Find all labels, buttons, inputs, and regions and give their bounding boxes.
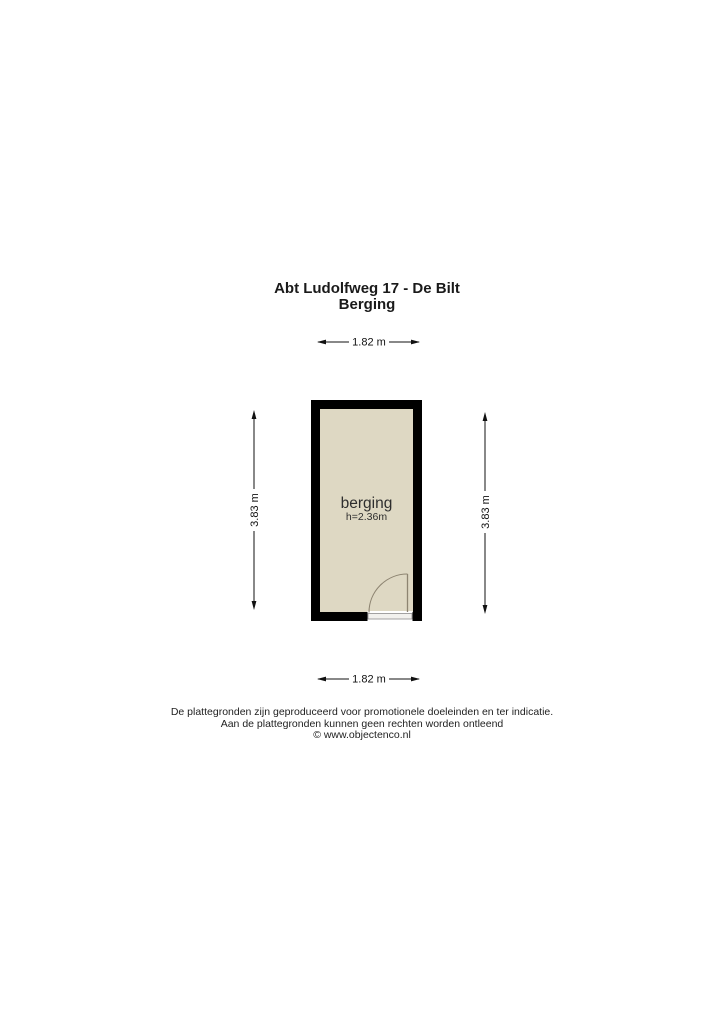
- arrow-right-icon: [411, 340, 420, 345]
- arrow-up-icon: [483, 412, 488, 421]
- dimension-top: 1.82 m: [317, 337, 420, 349]
- arrow-left-icon: [317, 677, 326, 682]
- dimension-top-label: 1.82 m: [352, 337, 386, 349]
- arrow-up-icon: [252, 410, 257, 419]
- room-berging: berging h=2.36m: [311, 400, 422, 622]
- disclaimer-line-1: De plattegronden zijn geproduceerd voor …: [0, 707, 724, 719]
- room-ceiling-height-label: h=2.36m: [346, 511, 387, 523]
- floorplan-page: Abt Ludolfweg 17 - De Bilt Berging bergi…: [0, 0, 724, 1024]
- arrow-down-icon: [483, 605, 488, 614]
- dimension-right-label: 3.83 m: [480, 495, 492, 529]
- arrow-left-icon: [317, 340, 326, 345]
- footer-disclaimer: De plattegronden zijn geproduceerd voor …: [0, 707, 724, 742]
- dimension-bottom: 1.82 m: [317, 674, 420, 686]
- copyright-line: © www.objectenco.nl: [0, 730, 724, 742]
- arrow-right-icon: [411, 677, 420, 682]
- dimension-right: 3.83 m: [480, 412, 492, 614]
- dimension-bottom-label: 1.82 m: [352, 674, 386, 686]
- floorplan-canvas: berging h=2.36m 1.82 m 1.82 m 3.83 m: [0, 0, 724, 1024]
- door-threshold: [368, 614, 412, 620]
- dimension-left: 3.83 m: [249, 410, 261, 610]
- room-name-label: berging: [341, 495, 393, 512]
- arrow-down-icon: [252, 601, 257, 610]
- dimension-left-label: 3.83 m: [249, 493, 261, 527]
